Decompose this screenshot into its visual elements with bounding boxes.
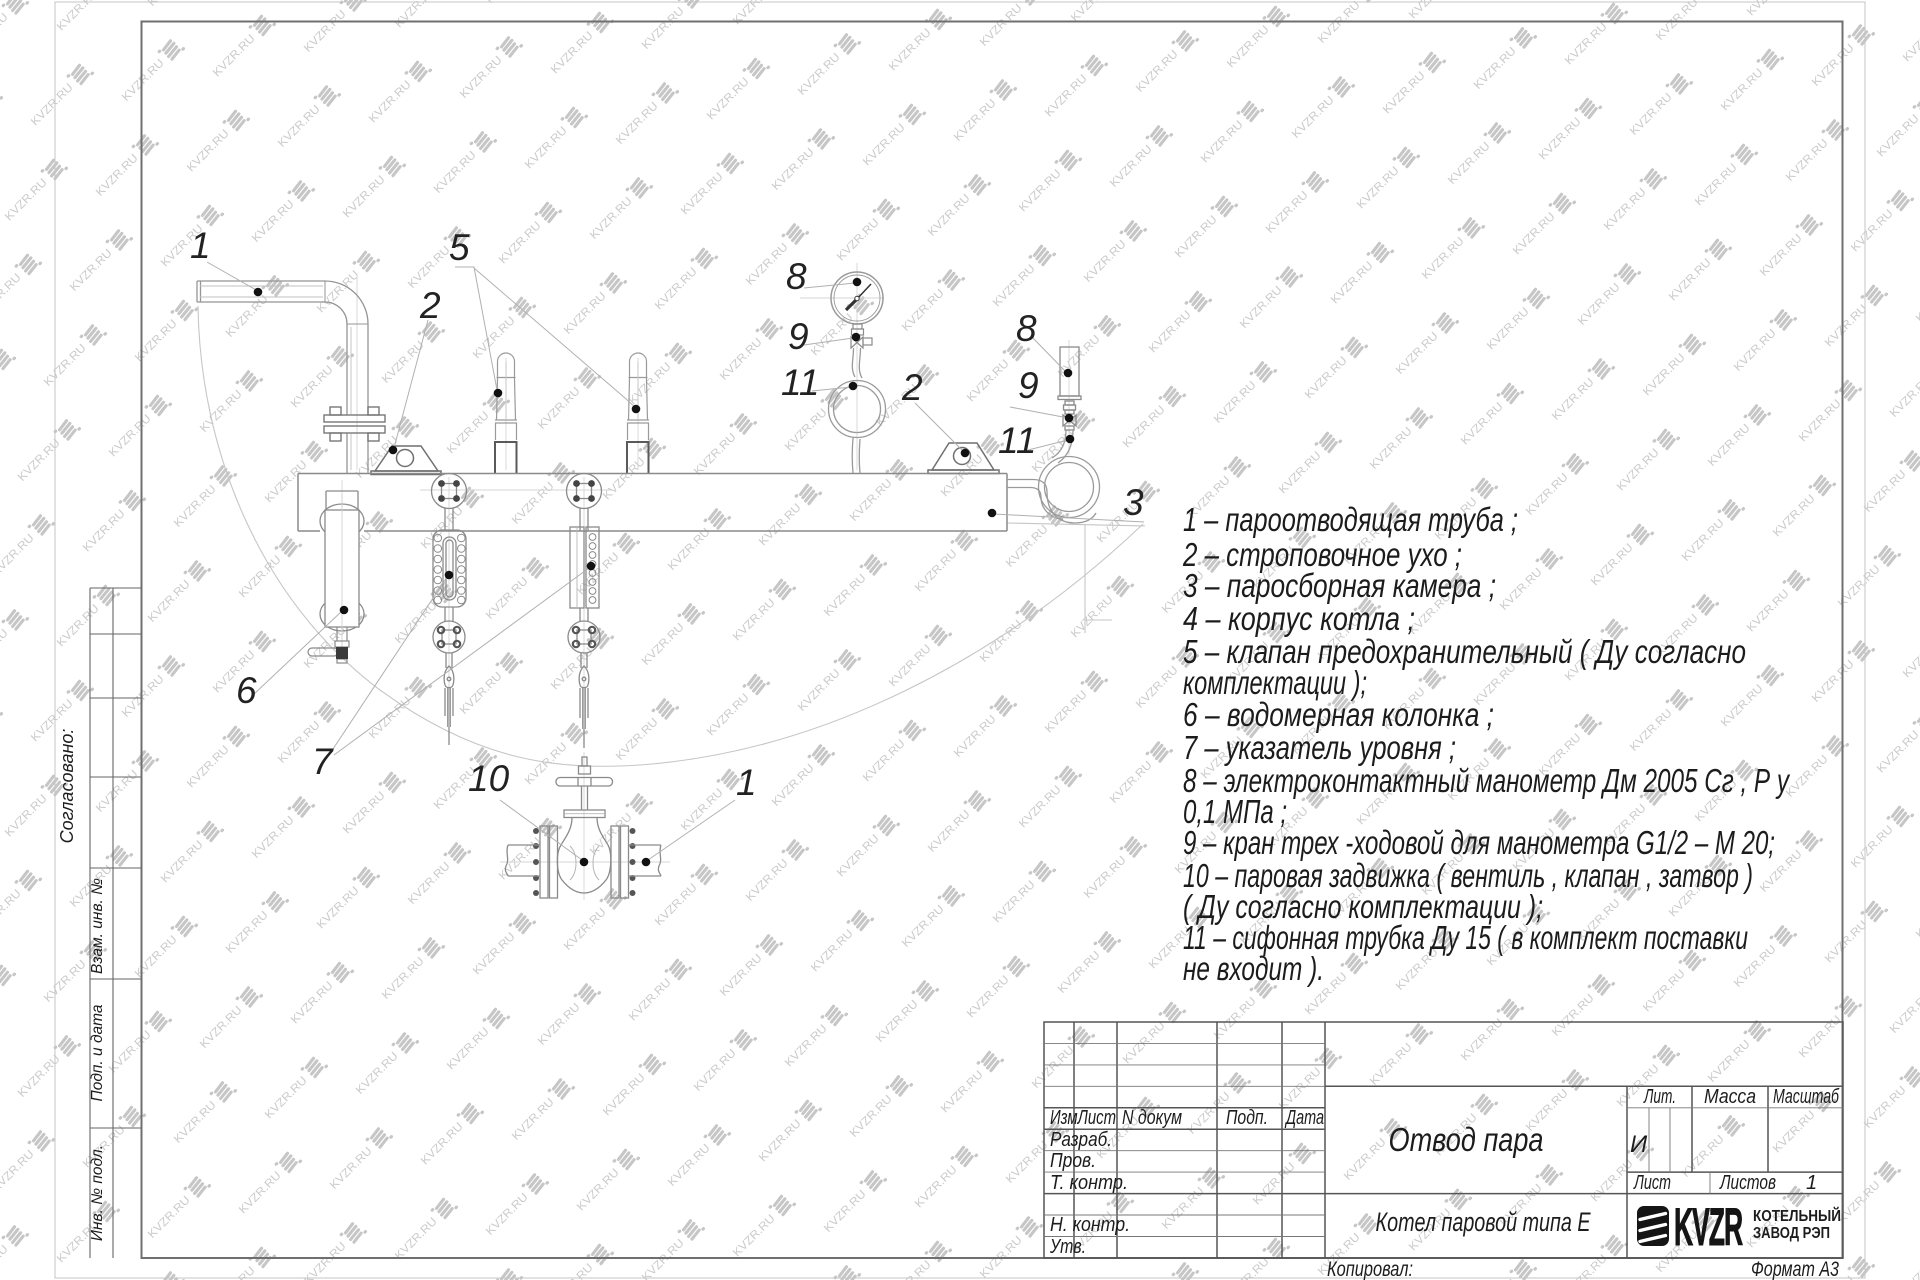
svg-text:6: 6 (236, 670, 257, 711)
svg-text:1: 1 (736, 762, 757, 803)
svg-text:Согласовано:: Согласовано: (57, 729, 77, 844)
svg-text:1: 1 (1806, 1172, 1817, 1194)
svg-text:Подп.: Подп. (1226, 1107, 1268, 1129)
svg-text:Котел паровой типа Е: Котел паровой типа Е (1376, 1207, 1592, 1237)
svg-text:6 – водомерная колонка ;: 6 – водомерная колонка ; (1183, 696, 1494, 733)
svg-text:8: 8 (1016, 308, 1037, 349)
svg-text:9 – кран трех -ходовой для ма: 9 – кран трех -ходовой для манометра G1/… (1183, 824, 1775, 861)
svg-text:N докум: N докум (1122, 1107, 1182, 1129)
svg-text:Н. контр.: Н. контр. (1050, 1214, 1130, 1236)
svg-text:2: 2 (901, 367, 923, 408)
svg-text:2: 2 (419, 285, 441, 326)
svg-text:Дата: Дата (1285, 1107, 1324, 1129)
svg-text:1: 1 (190, 225, 211, 266)
svg-text:11: 11 (781, 362, 819, 403)
svg-text:не входит ).: не входит ). (1183, 950, 1324, 987)
svg-text:Формат А3: Формат А3 (1751, 1258, 1839, 1280)
svg-text:7 – указатель уровня ;: 7 – указатель уровня ; (1183, 729, 1456, 766)
svg-text:Листов: Листов (1718, 1172, 1776, 1194)
svg-text:1 – пароотводящая труба ;: 1 – пароотводящая труба ; (1183, 501, 1518, 538)
svg-text:Масса: Масса (1704, 1086, 1756, 1108)
svg-text:11: 11 (998, 420, 1036, 461)
svg-text:10: 10 (468, 758, 510, 799)
svg-text:9: 9 (788, 316, 809, 357)
svg-text:Лит.: Лит. (1643, 1086, 1676, 1108)
svg-text:ЗАВОД РЭП: ЗАВОД РЭП (1753, 1225, 1830, 1242)
svg-text:3 – паросборная камера ;: 3 – паросборная камера ; (1183, 567, 1496, 604)
svg-text:3: 3 (1123, 482, 1144, 523)
svg-text:5: 5 (449, 227, 470, 268)
svg-text:Отвод пара: Отвод пара (1389, 1121, 1544, 1158)
svg-text:И: И (1630, 1131, 1648, 1158)
svg-text:KVZR: KVZR (1674, 1197, 1743, 1256)
svg-text:Инв. № подл.: Инв. № подл. (89, 1145, 106, 1241)
svg-text:Разраб.: Разраб. (1050, 1129, 1112, 1151)
svg-text:ИзмЛист: ИзмЛист (1050, 1107, 1116, 1129)
svg-text:7: 7 (312, 741, 334, 782)
svg-text:Т. контр.: Т. контр. (1050, 1172, 1128, 1194)
svg-text:Лист: Лист (1633, 1172, 1671, 1194)
svg-text:Копировал:: Копировал: (1327, 1258, 1413, 1280)
svg-text:4 – корпус котла ;: 4 – корпус котла ; (1183, 600, 1415, 637)
svg-text:КОТЕЛЬНЫЙ: КОТЕЛЬНЫЙ (1753, 1207, 1841, 1225)
svg-text:Пров.: Пров. (1050, 1150, 1096, 1172)
svg-text:8: 8 (786, 256, 807, 297)
svg-text:Подп. и дата: Подп. и дата (89, 1004, 106, 1101)
svg-text:Взам. инв. №: Взам. инв. № (89, 878, 106, 974)
svg-text:Масштаб: Масштаб (1773, 1086, 1840, 1108)
svg-text:9: 9 (1018, 365, 1039, 406)
svg-text:Утв.: Утв. (1049, 1236, 1086, 1258)
